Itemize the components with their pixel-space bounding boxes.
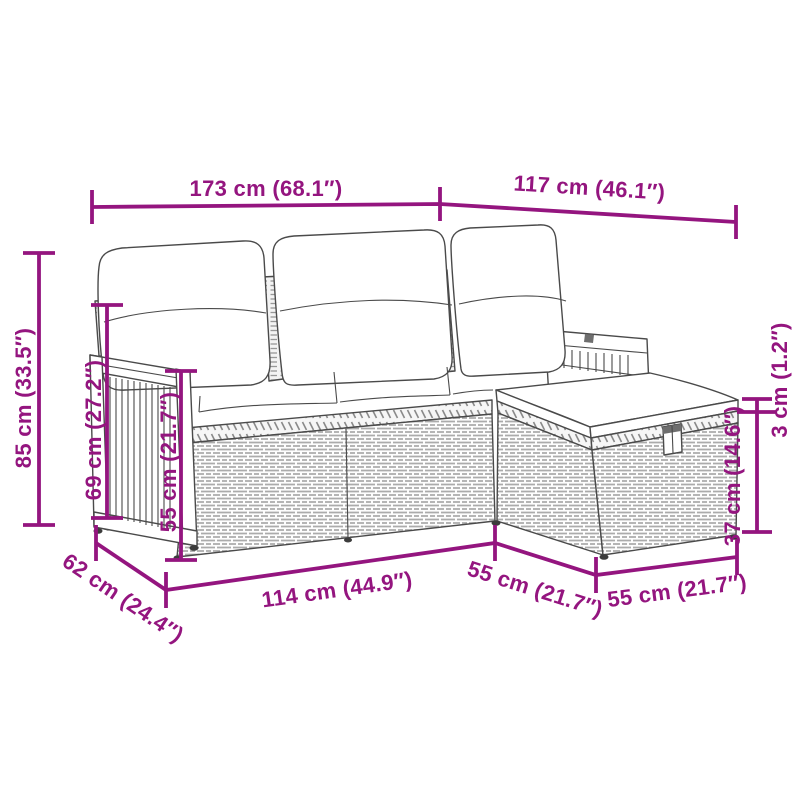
- sofa-set-drawing: [90, 225, 739, 561]
- dim-label-total-height: 85 cm (33.5″): [11, 328, 36, 468]
- product-dimension-diagram: 173 cm (68.1″) 117 cm (46.1″) 85 cm (33.…: [0, 0, 800, 800]
- sofa-base: [177, 400, 495, 557]
- armrest-screw: [584, 334, 594, 343]
- dim-label-back-height: 69 cm (27.2″): [81, 360, 106, 500]
- dim-label-stool-width: 55 cm (21.7″): [606, 569, 748, 612]
- dim-label-stool-height: 37 cm (14.6″): [720, 406, 745, 546]
- stool-latch: [663, 424, 682, 455]
- dim-label-cushion-thickness: 3 cm (1.2″): [767, 322, 792, 437]
- dim-label-chaise-span: 117 cm (46.1″): [513, 170, 666, 204]
- dim-label-arm-height: 55 cm (21.7″): [156, 392, 181, 532]
- dim-label-sofa-width: 173 cm (68.1″): [190, 176, 343, 201]
- diagram-canvas: 173 cm (68.1″) 117 cm (46.1″) 85 cm (33.…: [0, 0, 800, 800]
- back-cushions: [98, 225, 566, 390]
- storage-stool: [496, 373, 738, 555]
- dim-label-stool-gap-depth: 55 cm (21.7″): [465, 556, 606, 622]
